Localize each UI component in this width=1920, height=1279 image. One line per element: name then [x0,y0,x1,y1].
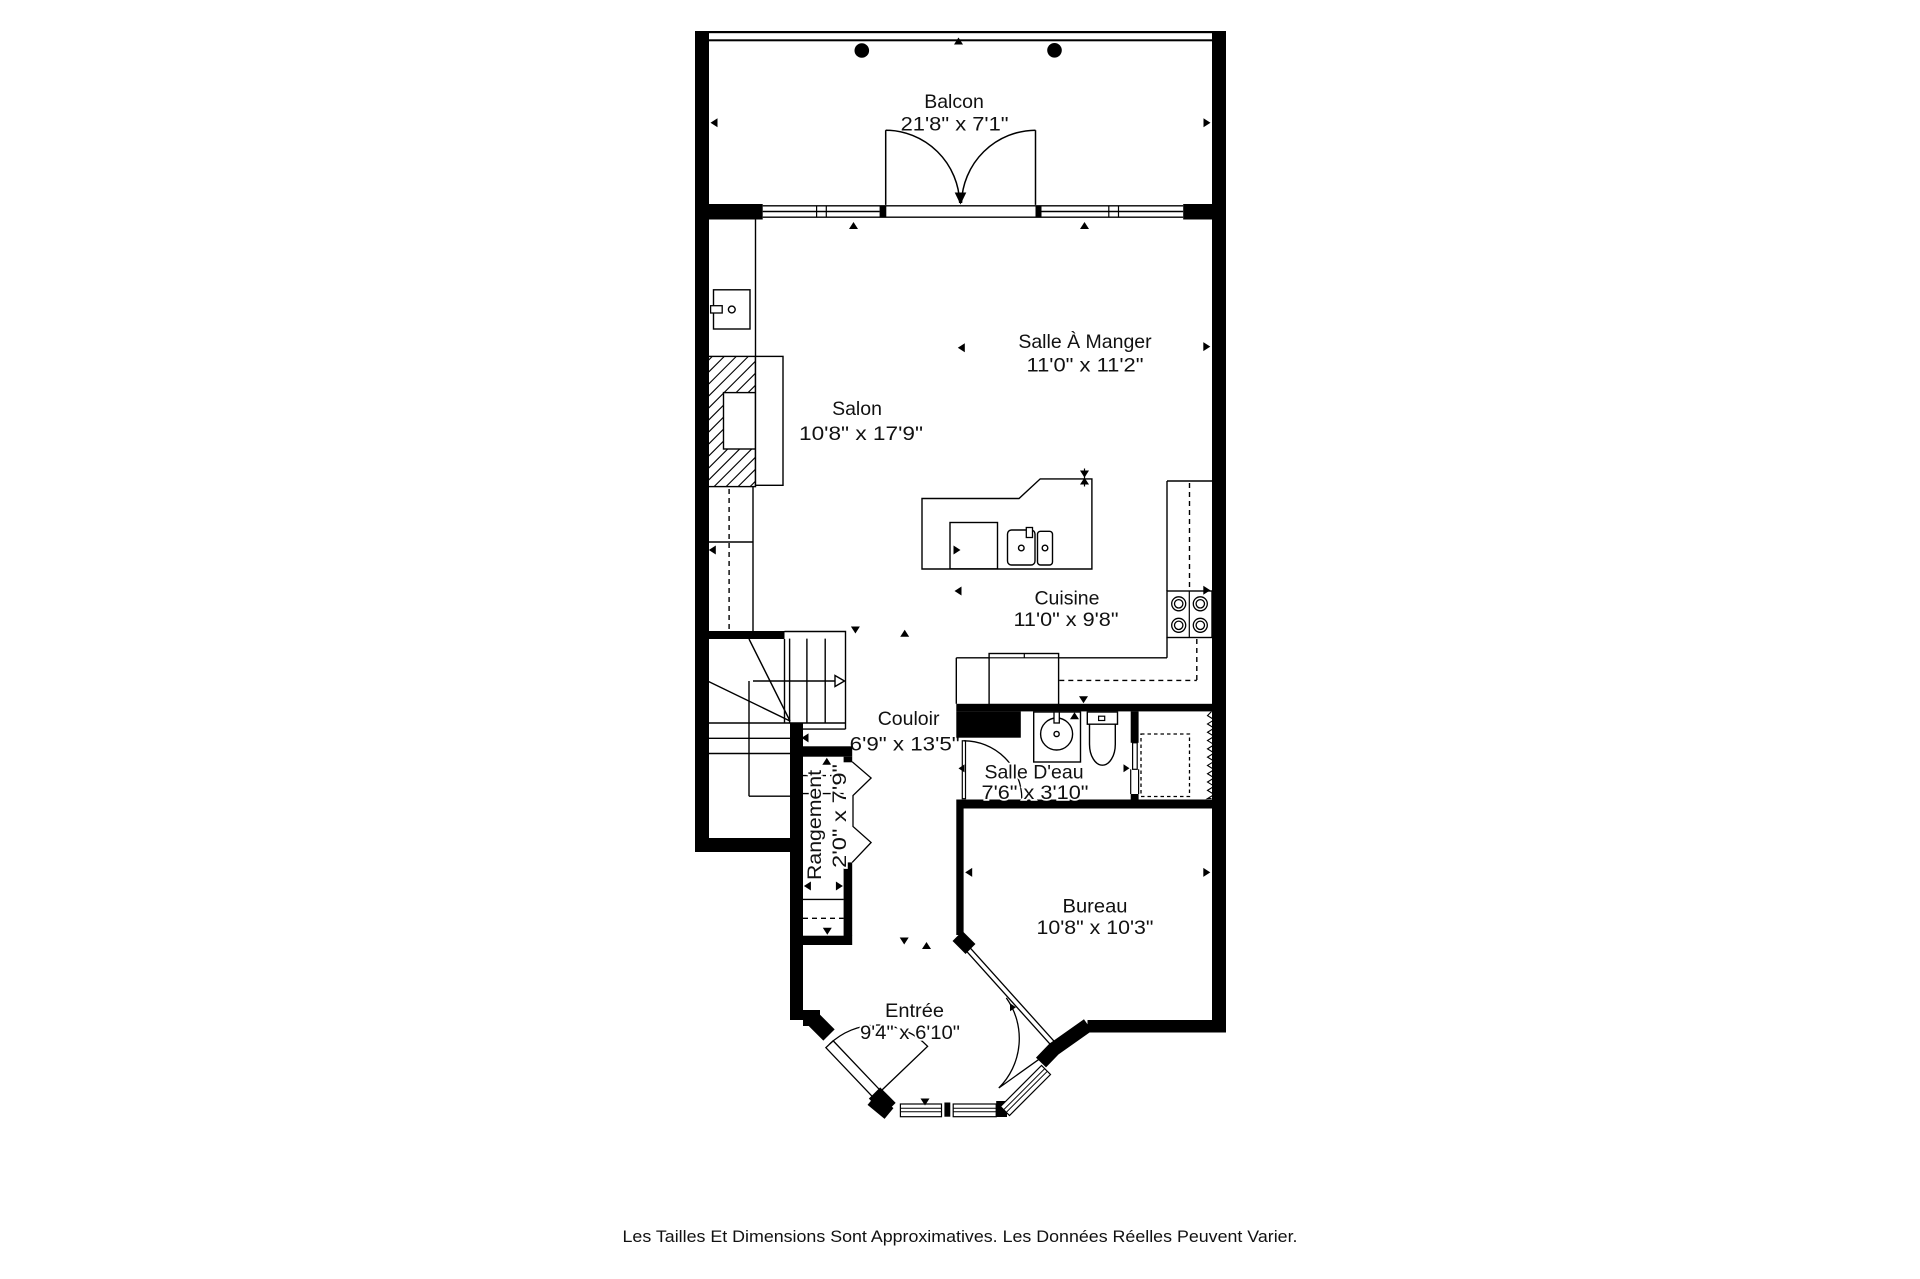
svg-text:Couloir: Couloir [878,708,940,730]
svg-text:11'0" x 9'8": 11'0" x 9'8" [1014,609,1119,631]
svg-text:Cuisine: Cuisine [1034,588,1099,610]
svg-text:21'8" x 7'1": 21'8" x 7'1" [901,114,1009,136]
svg-text:11'0" x 11'2": 11'0" x 11'2" [1027,355,1144,377]
svg-text:Bureau: Bureau [1063,896,1128,918]
svg-text:2'0" x 7'9": 2'0" x 7'9" [829,764,851,868]
svg-text:10'8" x 17'9": 10'8" x 17'9" [799,423,923,445]
svg-text:6'9" x 13'5": 6'9" x 13'5" [850,734,960,756]
svg-text:Rangement: Rangement [804,769,826,880]
svg-text:10'8" x 10'3": 10'8" x 10'3" [1037,917,1154,939]
svg-text:Salle À Manger: Salle À Manger [1018,330,1152,353]
svg-text:Balcon: Balcon [924,91,984,113]
svg-text:Salon: Salon [832,398,882,420]
svg-text:9'4" x 6'10": 9'4" x 6'10" [860,1022,960,1044]
svg-text:Les Tailles Et Dimensions Sont: Les Tailles Et Dimensions Sont Approxima… [623,1227,1298,1246]
svg-text:7'6" x 3'10": 7'6" x 3'10" [982,782,1089,804]
svg-text:Entrée: Entrée [885,1000,944,1022]
svg-text:Salle D'eau: Salle D'eau [984,762,1083,784]
